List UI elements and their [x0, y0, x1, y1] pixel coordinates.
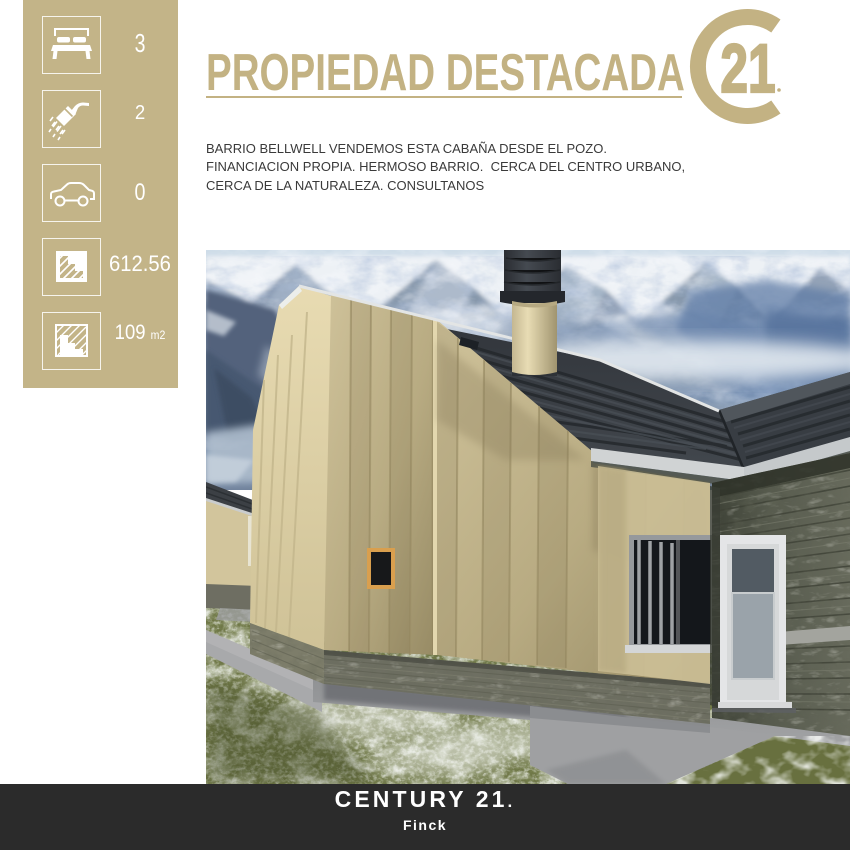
svg-text:21: 21 — [720, 30, 775, 107]
